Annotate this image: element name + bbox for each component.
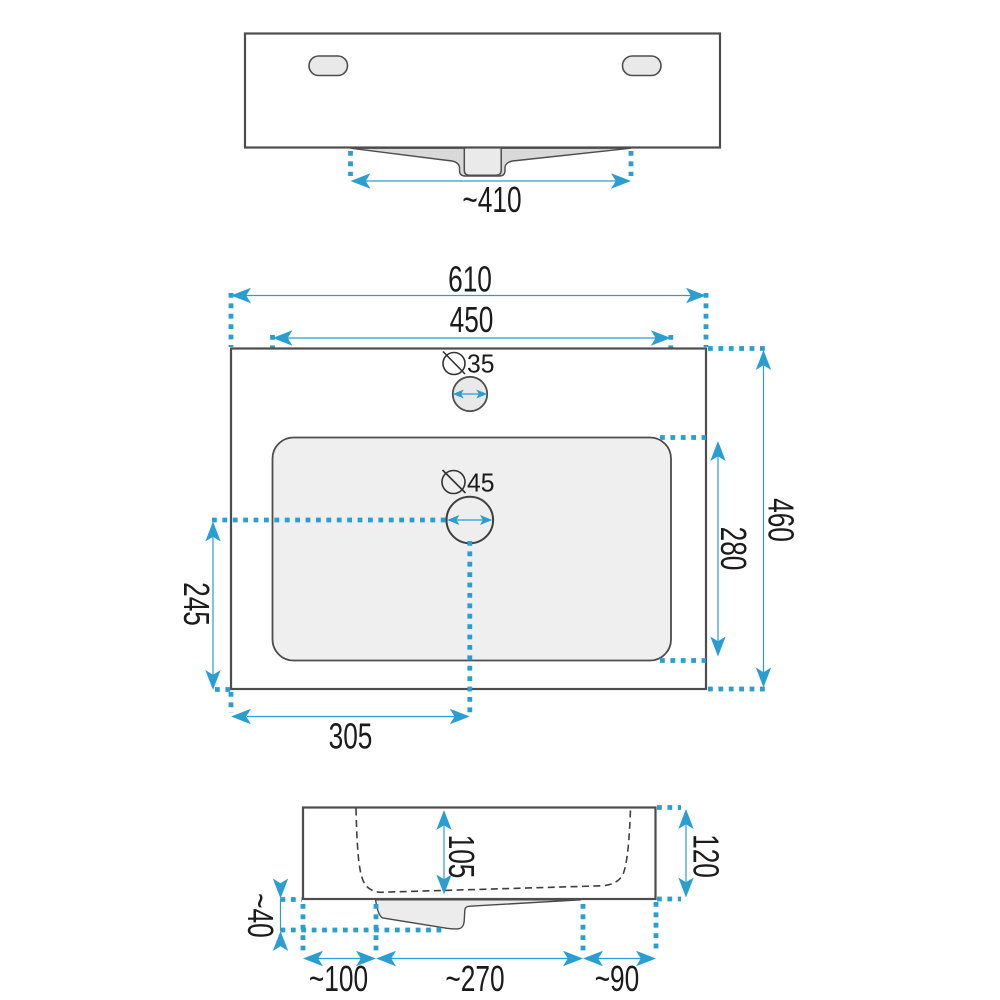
svg-text:35: 35 bbox=[467, 350, 494, 379]
svg-text:~100: ~100 bbox=[309, 958, 368, 999]
svg-text:~270: ~270 bbox=[445, 958, 504, 999]
svg-text:105: 105 bbox=[441, 835, 482, 879]
svg-text:~410: ~410 bbox=[462, 179, 521, 220]
svg-text:~40: ~40 bbox=[240, 893, 281, 938]
svg-text:120: 120 bbox=[686, 834, 727, 878]
svg-text:450: 450 bbox=[450, 299, 494, 340]
svg-text:460: 460 bbox=[761, 498, 802, 542]
svg-text:245: 245 bbox=[176, 582, 217, 626]
svg-text:280: 280 bbox=[713, 527, 754, 571]
svg-text:45: 45 bbox=[467, 469, 494, 498]
svg-text:610: 610 bbox=[448, 258, 492, 299]
svg-text:305: 305 bbox=[329, 715, 373, 756]
svg-text:~90: ~90 bbox=[595, 958, 640, 999]
